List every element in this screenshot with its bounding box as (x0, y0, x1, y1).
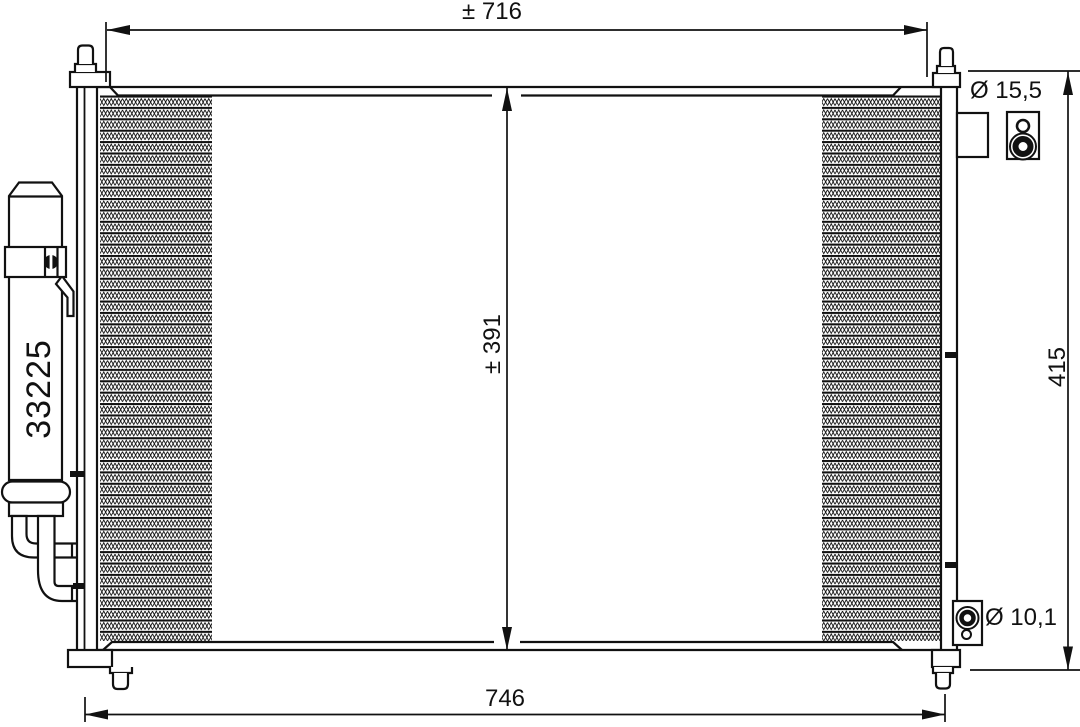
right-tank-top-cap (933, 73, 960, 87)
mounting-pin-top-right (940, 48, 953, 66)
right-tank-bottom-cap (932, 650, 960, 667)
dim-overall-height-label: 415 (1044, 347, 1071, 387)
fin-area-right (822, 96, 940, 642)
drier-part-number-label: 33225 (20, 339, 58, 439)
inlet-block (957, 113, 988, 157)
right-tank-tab-upper (945, 352, 958, 358)
inlet-bolt-hole (1017, 120, 1029, 132)
mounting-pin-top-right-base (937, 66, 955, 73)
clamp-screw-slot (50, 255, 53, 270)
mounting-pin-bottom-right (936, 673, 950, 689)
mounting-pin-top-left (78, 46, 93, 65)
dim-top-port-diameter-label: Ø 15,5 (970, 77, 1042, 104)
dim-core-height-label: ± 391 (479, 314, 506, 374)
mounting-pin-bottom-left-base (110, 667, 132, 673)
drier-bottom-plate (9, 503, 63, 517)
left-tank-tab-upper (70, 471, 84, 477)
fin-area-left (100, 96, 212, 642)
left-tank-tab-lower (73, 583, 84, 589)
right-tank-tab-lower (945, 562, 958, 568)
dim-bottom-port-diameter-label: Ø 10,1 (985, 604, 1057, 631)
dim-bottom-width-label: 746 (485, 685, 525, 712)
left-tank-top-cap (70, 72, 110, 87)
left-tank-bottom-cap (68, 650, 112, 667)
drier-bottom-ring (2, 482, 70, 503)
mounting-pin-bottom-right-base (933, 667, 953, 673)
mounting-pin-top-left-base (75, 64, 96, 72)
outlet-fitting-bottom (953, 601, 982, 645)
mounting-pin-bottom-left (113, 673, 128, 689)
condenser-drawing: 33225 (0, 0, 1080, 727)
outlet-bolt-hole (962, 630, 971, 639)
left-tank-body (77, 86, 97, 651)
technical-drawing-canvas: 33225 (0, 0, 1080, 727)
dim-top-width-label: ± 716 (462, 0, 522, 25)
